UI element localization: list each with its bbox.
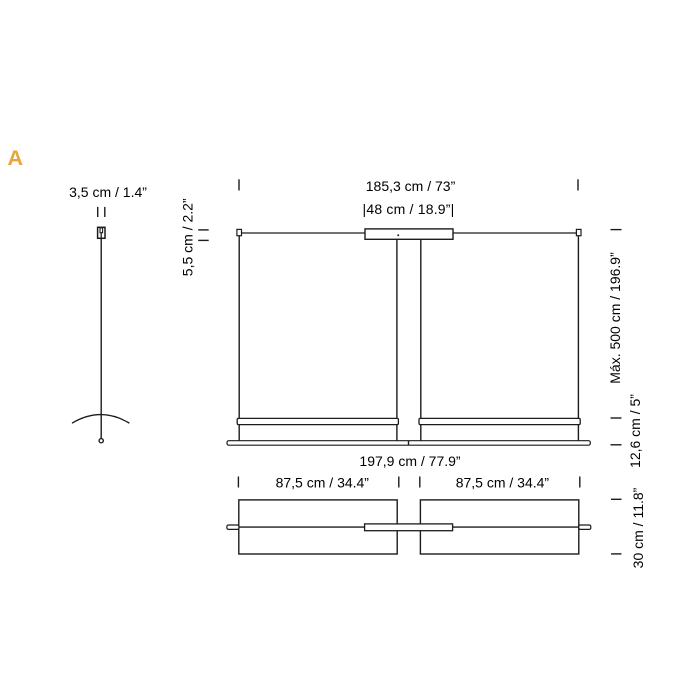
svg-text:30 cm / 11.8”: 30 cm / 11.8” [630, 487, 646, 568]
svg-text:87,5 cm / 34.4”: 87,5 cm / 34.4” [276, 475, 370, 491]
svg-text:|48 cm / 18.9”|: |48 cm / 18.9”| [363, 201, 455, 217]
svg-text:197,9 cm / 77.9”: 197,9 cm / 77.9” [359, 453, 461, 469]
svg-text:185,3 cm / 73”: 185,3 cm / 73” [366, 178, 456, 194]
svg-text:12,6 cm / 5”: 12,6 cm / 5” [627, 394, 643, 468]
svg-text:Máx. 500 cm / 196.9”: Máx. 500 cm / 196.9” [607, 252, 623, 384]
svg-text:87,5 cm / 34.4”: 87,5 cm / 34.4” [456, 475, 550, 491]
svg-text:5,5 cm / 2.2”: 5,5 cm / 2.2” [180, 198, 196, 276]
svg-text:A: A [8, 146, 24, 170]
svg-text:3,5 cm / 1.4”: 3,5 cm / 1.4” [69, 184, 147, 200]
